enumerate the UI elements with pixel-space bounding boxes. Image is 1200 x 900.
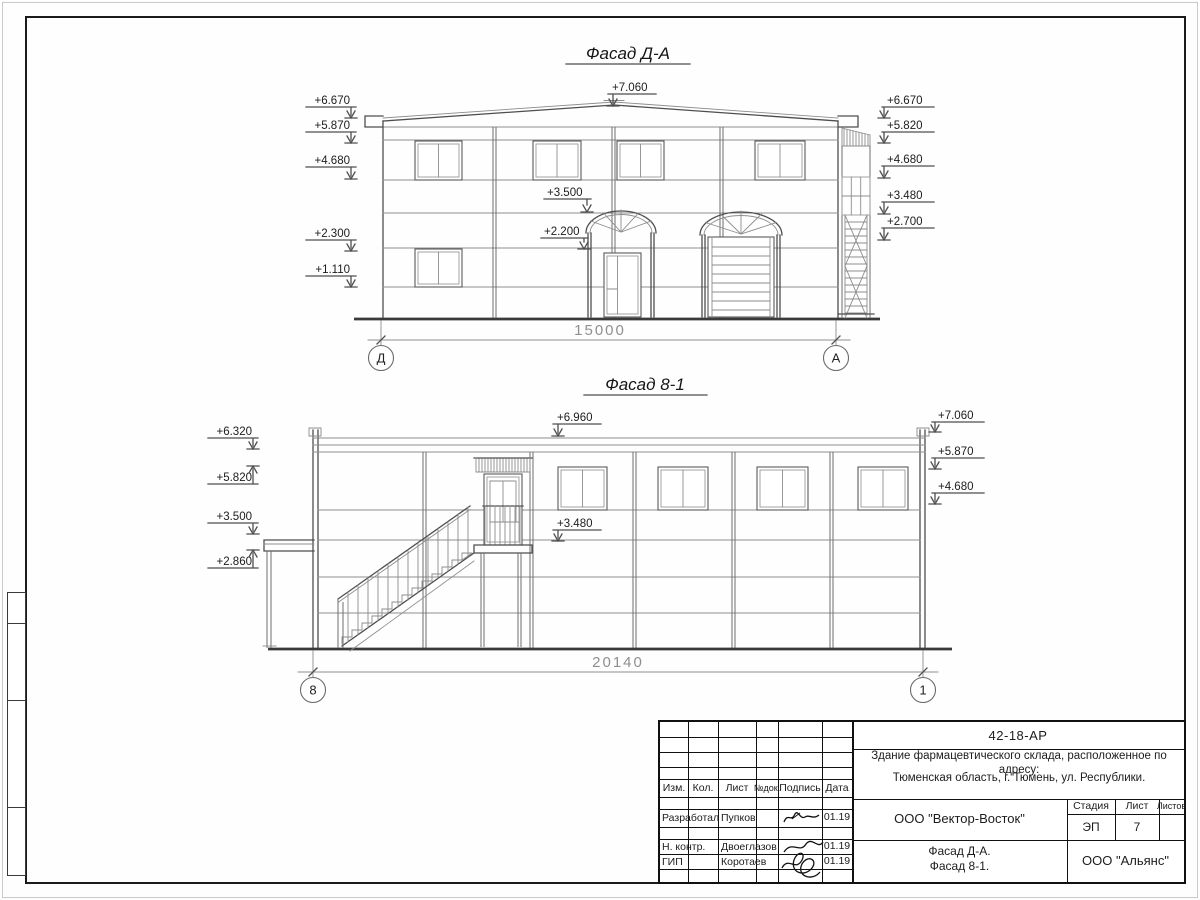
- title-block-line: [660, 752, 852, 753]
- column-header-list: Лист: [718, 780, 756, 797]
- facade-da-dimension: 15000 Д А: [368, 321, 850, 371]
- elevation-mark-label: +5.870: [938, 446, 974, 458]
- elevation-mark-label: +3.480: [557, 518, 593, 530]
- elevation-mark-label: +2.300: [315, 228, 351, 240]
- elevation-mark-label: +7.060: [938, 410, 974, 422]
- facade-da: Фасад Д-А: [306, 44, 934, 371]
- facade-81: Фасад 8-1: [208, 375, 984, 703]
- sheets-header: Листов: [1159, 799, 1184, 814]
- sheet-number: 7: [1115, 814, 1159, 840]
- facade-81-dimension: 20140 8 1: [298, 651, 938, 703]
- elevation-mark-label: +3.500: [217, 511, 253, 523]
- sheet-title-line2: Фасад 8-1.: [852, 858, 1067, 874]
- column-header-izm: Изм.: [660, 780, 688, 797]
- column-header-data: Дата: [822, 780, 852, 797]
- elevation-mark-label: +6.670: [887, 95, 923, 107]
- facade-da-marks-left: +6.670 +5.870 +4.680 +2.300 +1.110: [306, 95, 357, 287]
- elevation-mark-label: +3.500: [547, 187, 583, 199]
- column-header-kol: Кол.: [688, 780, 718, 797]
- column-header-podpis: Подпись: [778, 780, 822, 797]
- elevation-mark-label: +1.110: [315, 264, 350, 276]
- column-header-ndok: №док.: [756, 780, 778, 797]
- document-number: 42-18-АР: [852, 724, 1184, 749]
- person-name: Коротаев: [721, 854, 779, 869]
- date-value: 01.19: [822, 839, 852, 854]
- elevation-mark-label: +5.820: [887, 120, 923, 132]
- project-description-line1: Здание фармацевтического склада, располо…: [856, 755, 1182, 771]
- client-name: ООО "Альянс": [1067, 840, 1184, 882]
- signature-kontrol-gip: [778, 838, 826, 882]
- elevation-mark-label: +6.670: [315, 95, 351, 107]
- elevation-mark-label: +7.060: [612, 82, 648, 94]
- person-name: Двоеглазов: [721, 839, 779, 854]
- axis-label: А: [832, 351, 841, 366]
- stage-value: ЭП: [1067, 814, 1115, 840]
- dimension-value: 20140: [592, 654, 644, 671]
- signature-razrabotal: [780, 810, 822, 826]
- elevation-mark-label: +4.680: [887, 154, 923, 166]
- facade-81-title: Фасад 8-1: [605, 375, 685, 394]
- role-label: Разработал: [662, 810, 722, 826]
- elevation-mark-label: +2.860: [217, 556, 253, 568]
- facade-da-title: Фасад Д-А: [586, 44, 670, 63]
- sheet-title-line1: Фасад Д-А.: [852, 843, 1067, 859]
- date-value: 01.19: [822, 854, 852, 869]
- drawing-sheet: Фасад Д-А: [0, 0, 1200, 900]
- elevation-mark-label: +6.960: [557, 412, 593, 424]
- sheet-header: Лист: [1115, 799, 1159, 814]
- facade-da-gate: [700, 211, 782, 317]
- title-block: 42-18-АР Здание фармацевтического склада…: [658, 720, 1186, 884]
- elevation-mark-label: +4.680: [315, 155, 351, 167]
- elevation-mark-label: +2.700: [887, 216, 923, 228]
- date-value: 01.19: [822, 810, 852, 826]
- elevation-mark-label: +2.200: [544, 226, 580, 238]
- sheets-total: [1159, 814, 1184, 840]
- elevation-mark-label: +5.820: [217, 472, 253, 484]
- facade-81-stair-entrance: [338, 458, 532, 651]
- role-label: ГИП: [662, 854, 722, 869]
- axis-label: Д: [377, 351, 386, 366]
- role-label: Н. контр.: [662, 839, 722, 854]
- title-block-line: [660, 767, 852, 768]
- elevation-mark-label: +3.480: [887, 190, 923, 202]
- axis-label: 1: [919, 683, 926, 698]
- elevation-mark-label: +6.320: [217, 426, 253, 438]
- facade-81-building: [268, 428, 952, 649]
- person-name: Пупков: [721, 810, 779, 826]
- facade-da-stair-tower: [838, 128, 874, 318]
- facade-81-porch-canopy: [263, 540, 314, 648]
- contractor-name: ООО "Вектор-Восток": [852, 799, 1067, 840]
- dimension-value: 15000: [574, 322, 626, 339]
- elevation-mark-label: +5.870: [315, 120, 351, 132]
- axis-label: 8: [309, 683, 316, 698]
- facade-81-marks-right: +7.060 +5.870 +4.680: [929, 410, 984, 504]
- title-block-line: [660, 827, 852, 828]
- stage-header: Стадия: [1067, 799, 1115, 814]
- facade-81-windows: [558, 467, 908, 510]
- project-description-line2: Тюменская область, г. Тюмень, ул. Респуб…: [856, 770, 1182, 786]
- facade-da-marks-right: +6.670 +5.820 +4.680 +3.480 +2.700: [878, 95, 934, 240]
- facade-81-marks-left: +6.320 +5.820 +3.500 +2.860: [208, 426, 259, 568]
- title-block-line: [660, 737, 852, 738]
- elevation-mark-label: +4.680: [938, 481, 974, 493]
- facade-da-entrance-door: [586, 210, 656, 317]
- title-block-line: [660, 797, 852, 798]
